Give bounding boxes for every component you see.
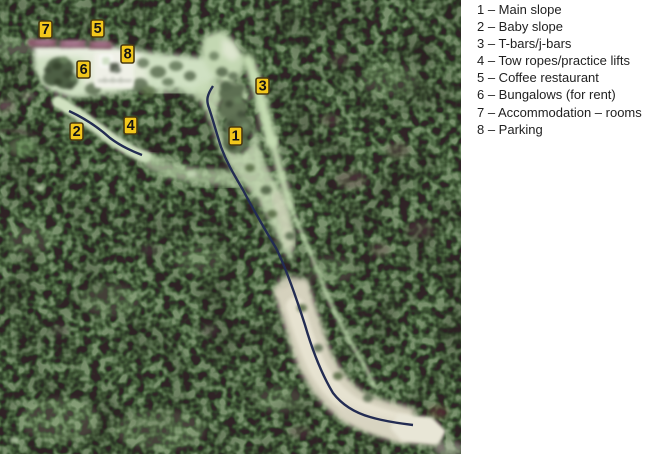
svg-text:8: 8 xyxy=(124,47,132,63)
svg-text:7: 7 xyxy=(42,22,50,38)
svg-text:6: 6 xyxy=(80,62,88,78)
svg-text:2: 2 xyxy=(73,124,81,140)
svg-text:1: 1 xyxy=(232,129,240,145)
svg-text:4: 4 xyxy=(127,118,135,134)
svg-text:5: 5 xyxy=(94,21,102,37)
svg-text:3: 3 xyxy=(259,79,267,95)
